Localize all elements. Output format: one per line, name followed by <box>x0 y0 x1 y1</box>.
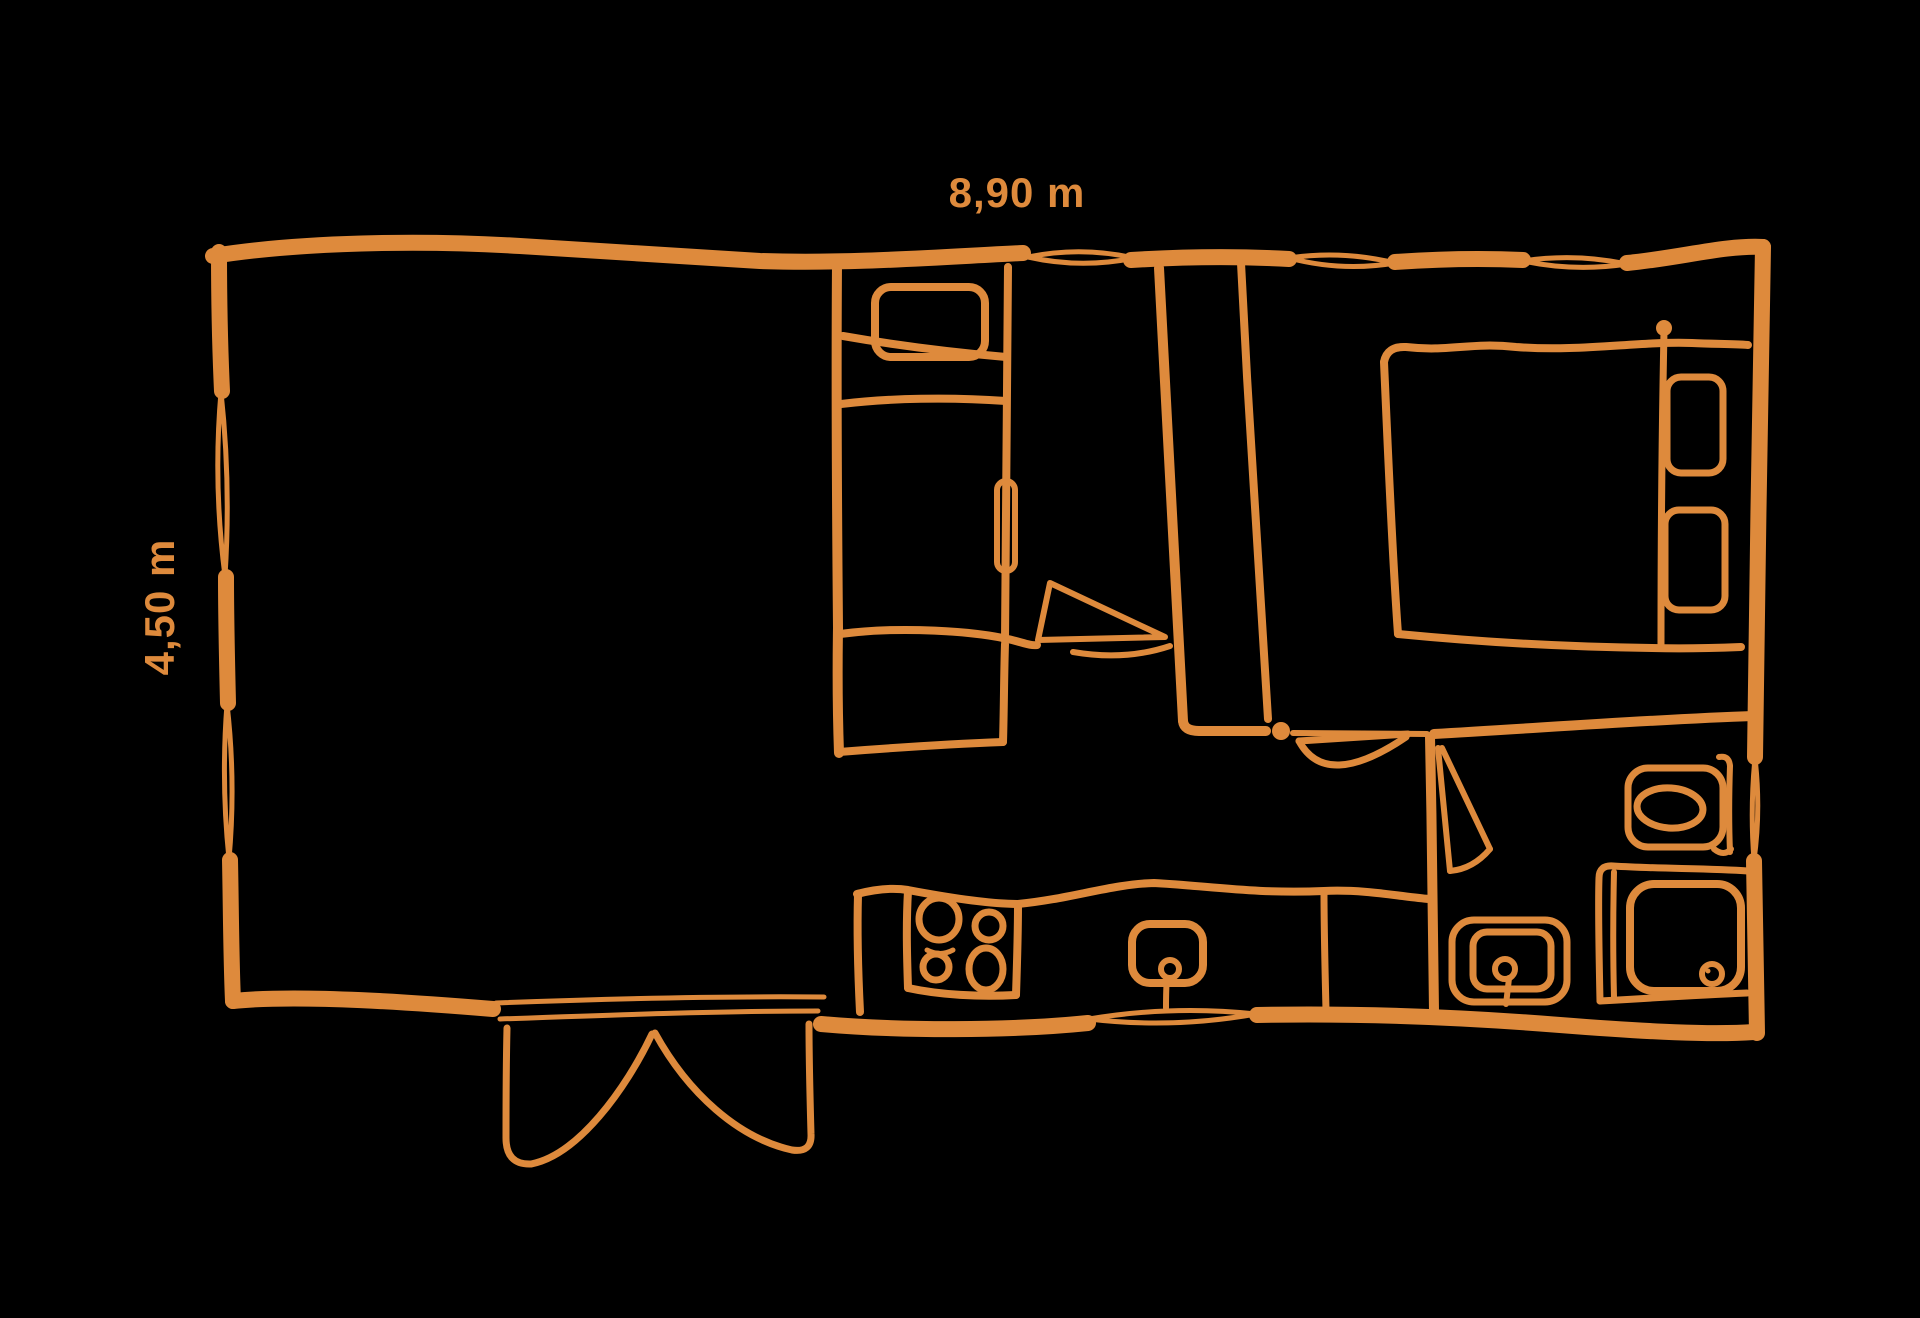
kitchen-counter <box>857 883 1429 1012</box>
wall-top-right-b <box>1627 247 1763 263</box>
washbasin-faucet-stem <box>1506 978 1509 1004</box>
window-left-2 <box>224 704 232 859</box>
window-top-1 <box>1028 252 1134 264</box>
single-bedroom <box>837 264 1170 753</box>
bathroom-top-wall <box>1434 716 1753 734</box>
wall-bottom-right <box>1257 1014 1754 1033</box>
partition-line-a <box>1159 268 1183 721</box>
shower-drain-dot <box>1706 969 1711 974</box>
burner-large-left <box>919 898 959 940</box>
burner-small-right <box>975 912 1003 940</box>
double-bed-top-edge <box>1384 343 1748 362</box>
partition-bottom-wall <box>1183 721 1266 731</box>
partition-line-b <box>1241 263 1268 719</box>
hob-left-edge <box>907 891 908 988</box>
bed-pillow-1 <box>1667 377 1723 473</box>
entrance-threshold <box>496 997 824 1019</box>
wall-right-upper <box>1755 247 1763 757</box>
shower-left-inner-line <box>1613 872 1614 997</box>
toilet-tank-curl <box>1719 757 1730 766</box>
bathroom <box>1430 716 1753 1011</box>
floor-plan-svg: 8,90 m 4,50 m <box>0 0 1920 1318</box>
corridor-door-arc <box>1073 646 1170 655</box>
toilet-tank-line <box>1729 766 1730 852</box>
foot-cabinet-bottom <box>839 742 1003 752</box>
entrance-door-left-leaf <box>506 1028 652 1164</box>
kitchen-faucet-stem <box>1166 978 1167 1008</box>
washbasin-faucet <box>1495 959 1515 979</box>
burner-large-right <box>969 948 1003 990</box>
wall-left-middle <box>226 577 228 703</box>
entrance-double-door <box>506 1024 811 1164</box>
window-bottom-kitchen <box>1089 1010 1256 1023</box>
toilet-tank-foot <box>1714 849 1731 853</box>
entrance-door-right-leaf <box>655 1024 811 1150</box>
single-bedroom-wall <box>837 264 839 753</box>
toilet-outer <box>1628 768 1723 847</box>
double-bed-bottom-edge <box>1398 634 1741 648</box>
wall-top-left <box>213 243 1023 262</box>
burner-small-left <box>923 954 949 980</box>
wardrobe-partition <box>1159 263 1427 765</box>
window-top-2 <box>1289 255 1395 267</box>
counter-left-edge <box>858 895 860 1012</box>
kitchen-sink <box>1132 924 1203 983</box>
single-bed-side-rail <box>1005 267 1008 641</box>
headboard-dot <box>1656 320 1672 336</box>
window-left-1 <box>218 392 227 576</box>
hob-right-edge <box>1016 905 1018 995</box>
wall-top-right-a <box>1395 259 1523 262</box>
wall-bottom-middle <box>821 1023 1088 1029</box>
bathroom-door-arc <box>1450 849 1490 871</box>
foot-cabinet-right <box>1003 644 1005 742</box>
corridor-door-leaf <box>1038 583 1165 640</box>
shower-drain <box>1702 964 1722 984</box>
wall-left-upper <box>219 252 222 391</box>
window-top-3 <box>1523 258 1627 268</box>
floor-plan-image: 8,90 m 4,50 m <box>0 0 1920 1318</box>
bed-pillow-2 <box>1665 510 1725 610</box>
double-bedroom <box>1384 320 1748 648</box>
single-bed-blanket-line <box>841 399 1006 404</box>
hob-bottom-edge <box>908 988 1016 996</box>
width-dimension-label: 8,90 m <box>949 169 1086 216</box>
door-hinge-dot <box>1272 722 1290 740</box>
wall-bottom-left <box>233 998 493 1009</box>
counter-divider <box>1324 892 1326 1010</box>
wall-right-lower <box>1754 861 1757 1033</box>
toilet-bowl <box>1636 786 1705 831</box>
bathroom-left-wall <box>1430 737 1434 1011</box>
wall-left-lower <box>230 860 233 1001</box>
window-right-bathroom <box>1752 758 1758 860</box>
height-dimension-label: 4,50 m <box>136 539 183 676</box>
kitchen-faucet <box>1161 960 1179 978</box>
wall-top-middle <box>1131 257 1289 260</box>
double-bed-left-edge <box>1384 362 1398 634</box>
